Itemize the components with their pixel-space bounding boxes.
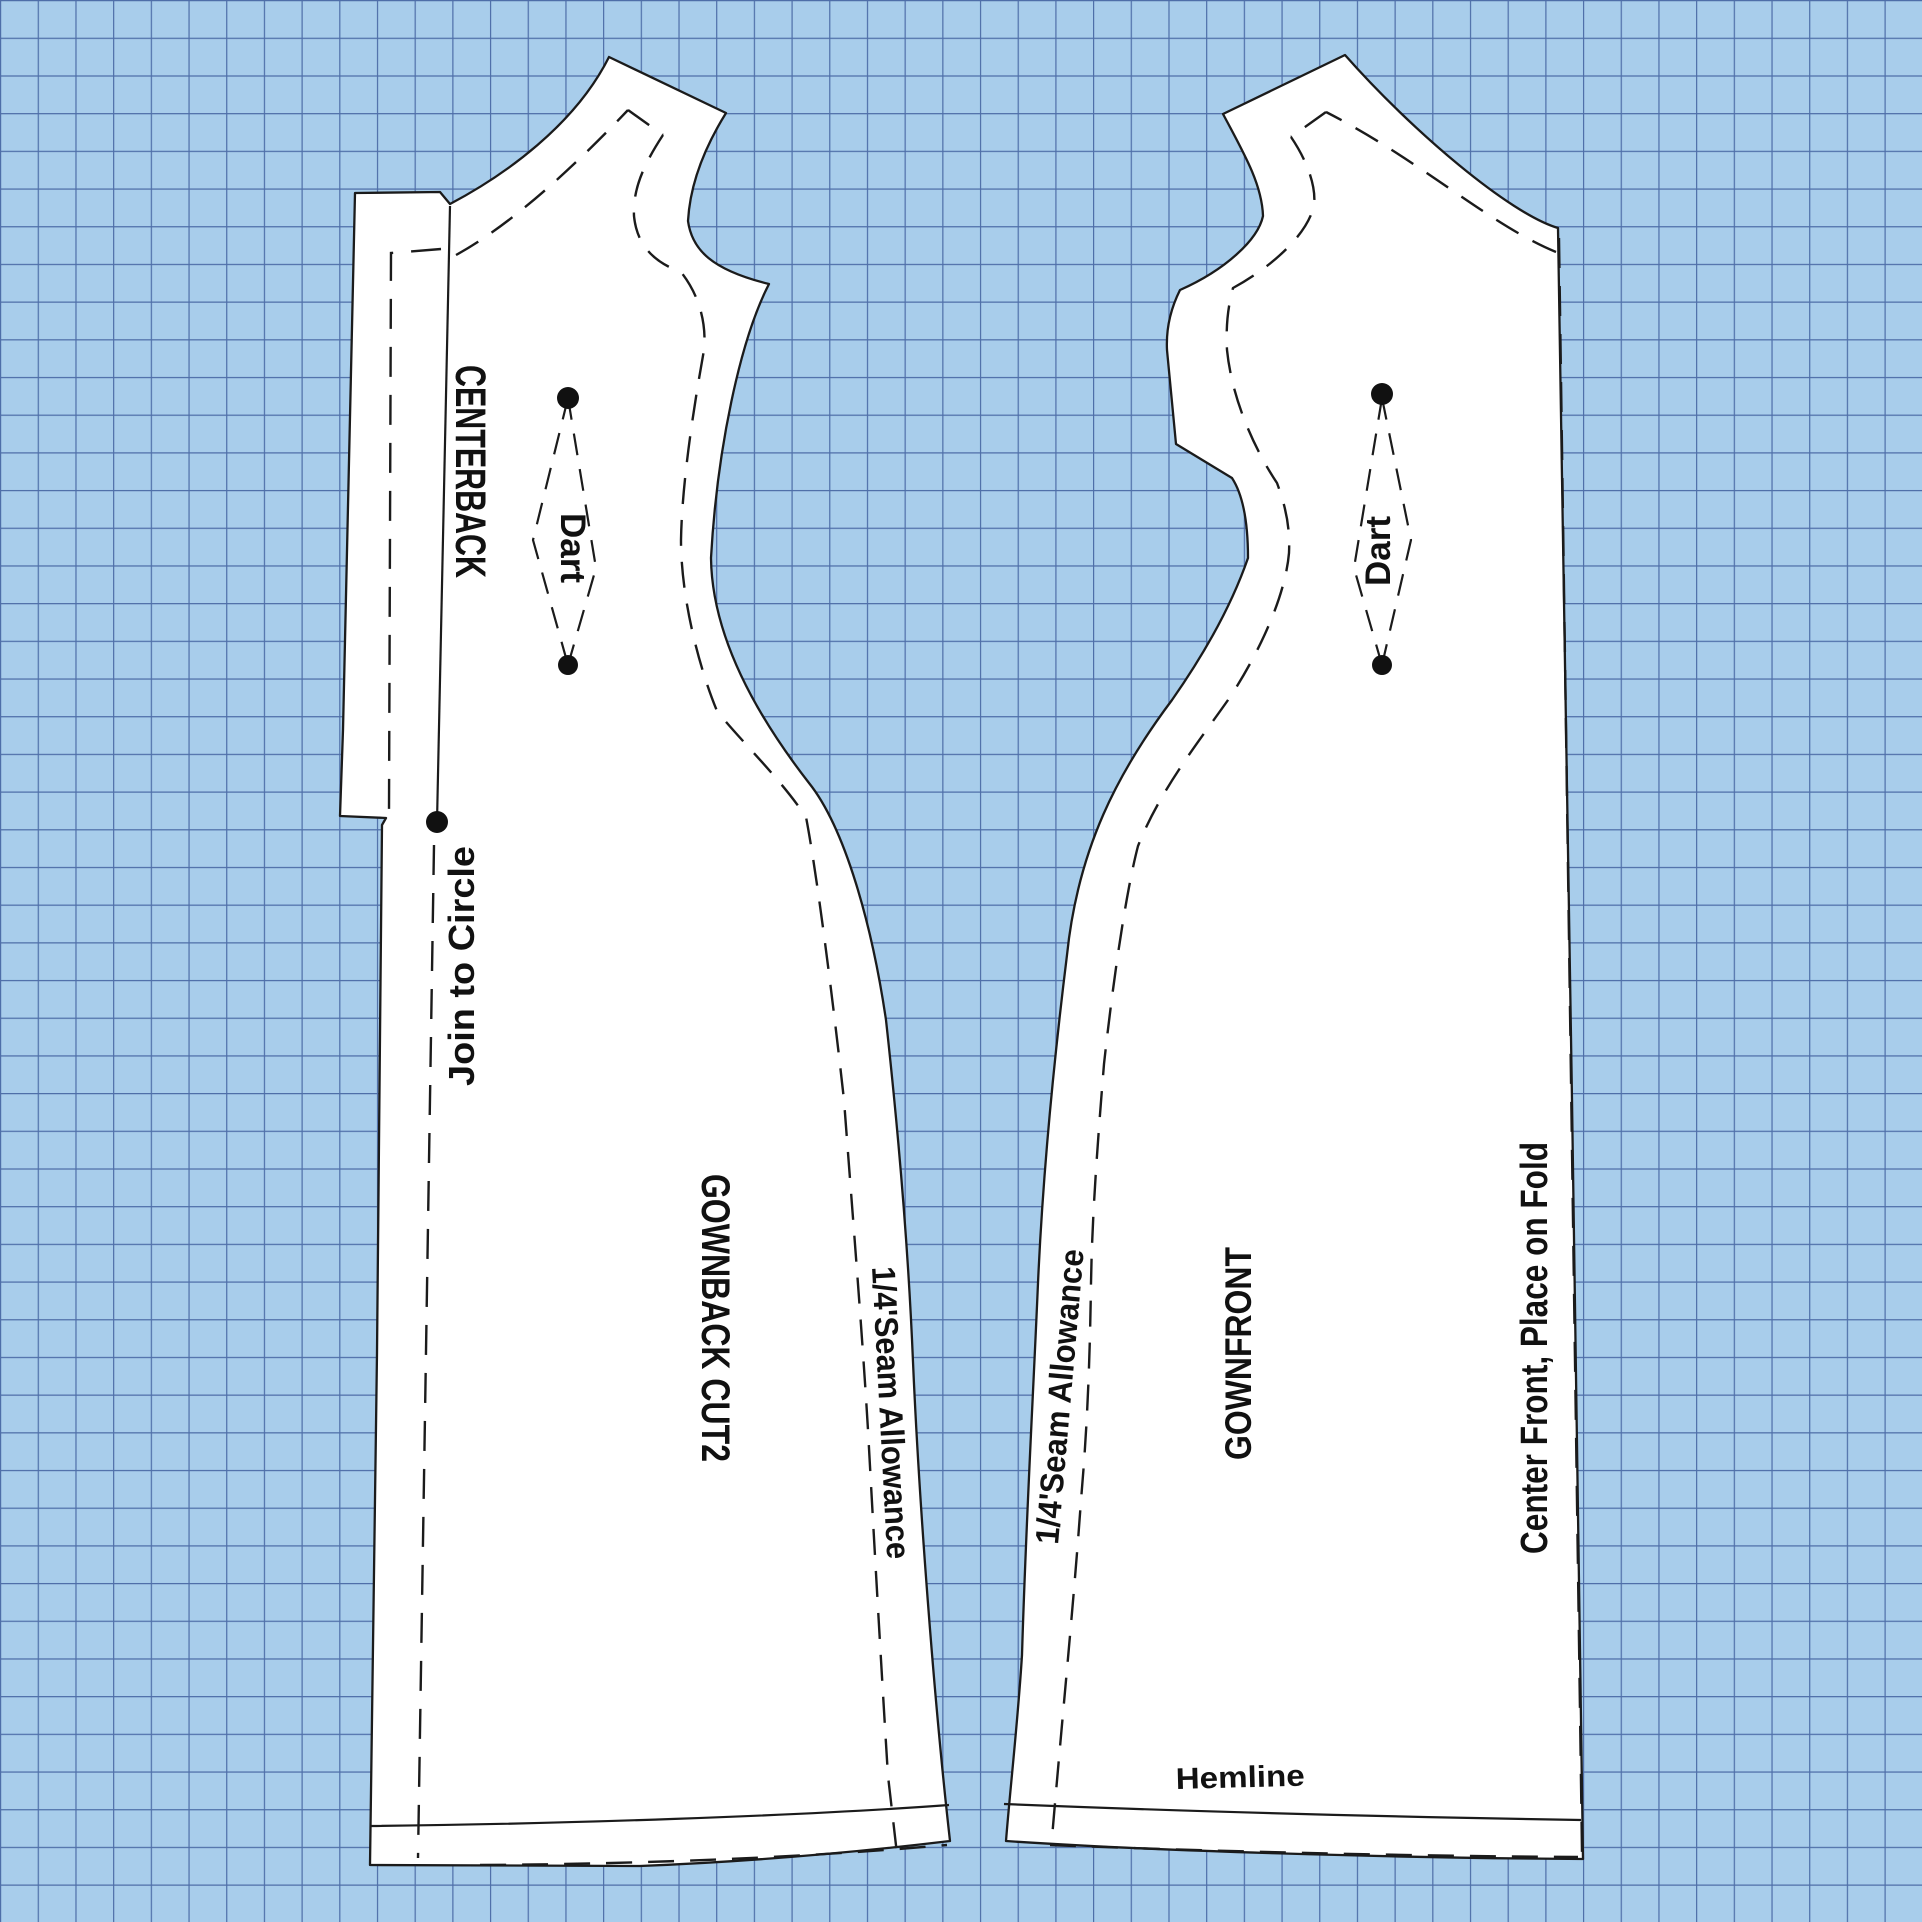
svg-text:Join to Circle: Join to Circle	[441, 846, 482, 1086]
svg-text:Dart: Dart	[553, 513, 592, 583]
svg-text:Dart: Dart	[1359, 516, 1398, 586]
svg-text:Hemline: Hemline	[1175, 1760, 1305, 1796]
svg-text:CENTERBACK: CENTERBACK	[446, 365, 494, 578]
svg-text:GOWNBACK CUT2: GOWNBACK CUT2	[693, 1174, 737, 1462]
svg-text:GOWNFRONT: GOWNFRONT	[1218, 1247, 1259, 1460]
svg-text:Center Front, Place on Fold: Center Front, Place on Fold	[1514, 1142, 1556, 1554]
